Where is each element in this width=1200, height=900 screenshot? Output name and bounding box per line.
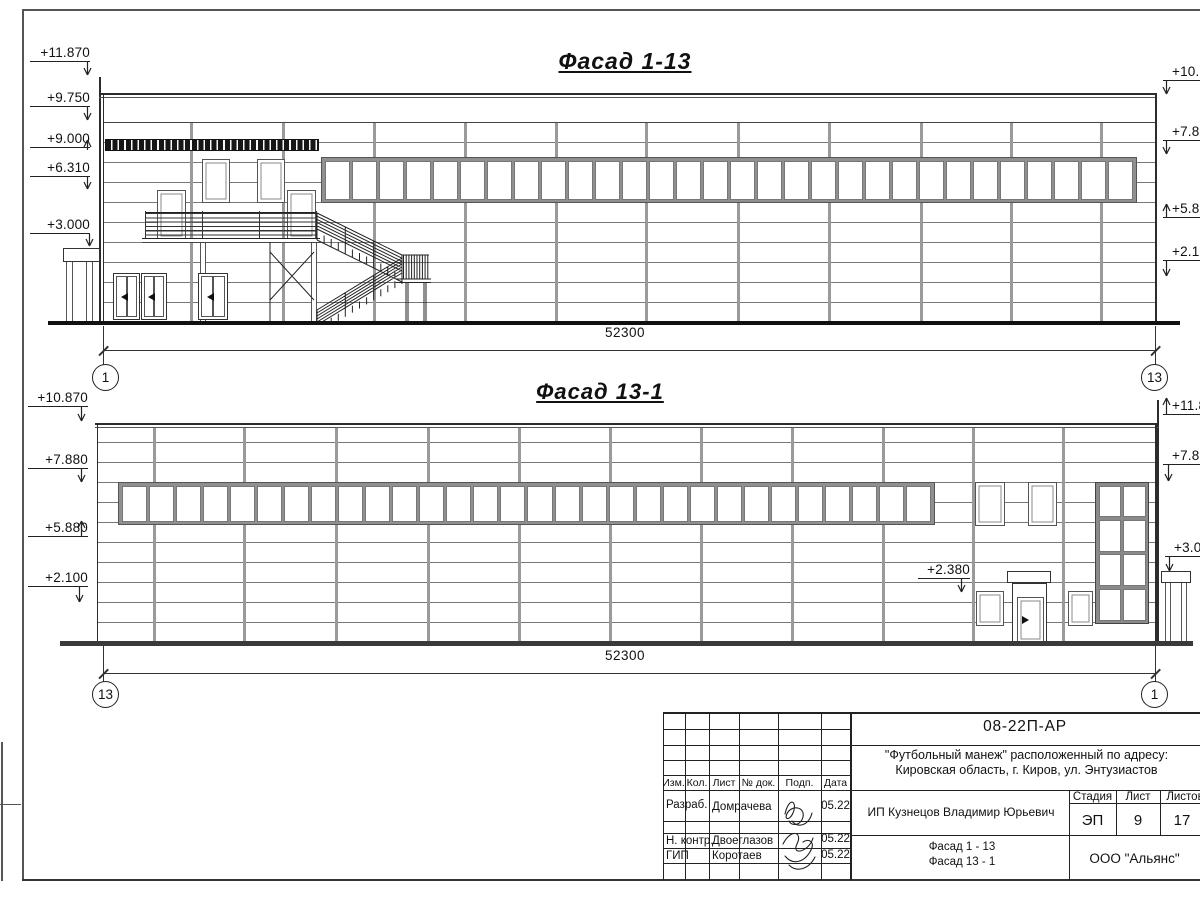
titleblock-line bbox=[663, 821, 850, 822]
level-arrow-down-icon bbox=[1163, 465, 1174, 482]
elevation-mark: +9.000 bbox=[30, 132, 90, 148]
window-pane bbox=[176, 486, 201, 522]
door-swing-arrow-icon bbox=[148, 293, 155, 301]
col-header-kol: Кол. bbox=[685, 776, 709, 789]
window-pane bbox=[1123, 520, 1145, 552]
dimension-line bbox=[103, 350, 1155, 351]
level-arrow-down-icon bbox=[76, 469, 87, 483]
facade2-ground-line bbox=[60, 641, 1193, 646]
facade2-window bbox=[1028, 482, 1057, 526]
window-pane bbox=[730, 161, 755, 200]
window-pane bbox=[771, 486, 796, 522]
window-pane bbox=[609, 486, 634, 522]
window-pane bbox=[595, 161, 620, 200]
column-line bbox=[1062, 427, 1065, 641]
elevation-mark: +7.880 bbox=[1163, 125, 1200, 141]
column-line bbox=[645, 122, 648, 321]
level-arrow-down-icon bbox=[82, 177, 93, 190]
window-pane bbox=[703, 161, 728, 200]
window-pane bbox=[419, 486, 444, 522]
facade1-porch-column bbox=[66, 262, 73, 321]
window-pane bbox=[838, 161, 863, 200]
window-pane bbox=[825, 486, 850, 522]
sheet-number: 9 bbox=[1116, 808, 1160, 832]
titleblock-line bbox=[663, 745, 1200, 746]
window-pane bbox=[973, 161, 998, 200]
col-header-podp: Подп. bbox=[778, 776, 821, 789]
facade2-window bbox=[975, 482, 1005, 526]
elevation-mark: +6.310 bbox=[30, 161, 90, 177]
door-leaf bbox=[213, 276, 225, 317]
stage-label: Стадия bbox=[1069, 791, 1116, 803]
column-line bbox=[335, 427, 338, 641]
column-line bbox=[828, 122, 831, 321]
doc-number: 08-22П-АР bbox=[850, 715, 1200, 739]
window-pane bbox=[1123, 486, 1145, 518]
facade2-window-band bbox=[118, 482, 935, 525]
facade1-window bbox=[257, 159, 285, 203]
window-pane bbox=[284, 486, 309, 522]
window-pane bbox=[203, 486, 228, 522]
col-header-izm: Изм. bbox=[662, 776, 685, 789]
window-pane bbox=[311, 486, 336, 522]
window-pane bbox=[1081, 161, 1106, 200]
titleblock-line bbox=[1069, 803, 1200, 804]
column-line bbox=[153, 427, 156, 641]
siding-line bbox=[97, 462, 1155, 463]
window-pane bbox=[257, 486, 282, 522]
door-leaf bbox=[127, 276, 138, 317]
sheet-content-line2: Фасад 13 - 1 bbox=[855, 855, 1069, 868]
window-pane bbox=[392, 486, 417, 522]
facade1-roofline bbox=[103, 122, 1155, 123]
facade2-left-edge bbox=[97, 423, 98, 641]
row-name: Двоеглазов bbox=[712, 834, 778, 847]
titleblock-border bbox=[663, 712, 1200, 714]
facade1-porch-column bbox=[86, 262, 93, 321]
level-arrow-down-icon bbox=[1161, 141, 1172, 155]
titleblock-line bbox=[663, 760, 850, 761]
level-arrow-down-icon bbox=[74, 587, 85, 603]
level-arrow-down-icon bbox=[956, 579, 967, 593]
titleblock-border bbox=[663, 712, 665, 880]
level-arrow-down-icon bbox=[1161, 261, 1172, 277]
column-line bbox=[1010, 122, 1013, 321]
elevation-mark: +7.880 bbox=[28, 453, 88, 469]
window-pane bbox=[1099, 554, 1121, 586]
stage-value: ЭП bbox=[1069, 808, 1116, 832]
level-arrow-down-icon bbox=[84, 234, 95, 247]
extension-line bbox=[103, 646, 104, 682]
row-date: 05.22 bbox=[821, 799, 850, 812]
facade2-porch-roof bbox=[1161, 571, 1191, 583]
window-pane bbox=[406, 161, 431, 200]
window-pane bbox=[352, 161, 377, 200]
row-date: 05.22 bbox=[821, 848, 850, 861]
window-pane bbox=[1108, 161, 1133, 200]
level-arrow-down-icon bbox=[1161, 81, 1172, 95]
window-pane bbox=[879, 486, 904, 522]
sheet-label: Лист bbox=[1116, 791, 1160, 803]
window-pane bbox=[433, 161, 458, 200]
window-pane bbox=[527, 486, 552, 522]
elevation-mark: +2.100 bbox=[28, 571, 88, 587]
facade1-window-band bbox=[321, 157, 1137, 203]
window-pane bbox=[460, 161, 485, 200]
window-pane bbox=[663, 486, 688, 522]
level-arrow-down-icon bbox=[82, 107, 93, 121]
level-arrow-down-icon bbox=[1164, 557, 1175, 572]
project-address-line2: Кировская область, г. Киров, ул. Энтузиа… bbox=[853, 763, 1200, 777]
level-arrow-down-icon bbox=[76, 407, 87, 422]
window-pane bbox=[622, 161, 647, 200]
facade1-axis-left: 1 bbox=[92, 364, 119, 391]
client-name: ИП Кузнецов Владимир Юрьевич bbox=[853, 804, 1069, 820]
row-date: 05.22 bbox=[821, 832, 850, 845]
window-pane bbox=[1099, 486, 1121, 518]
window-pane bbox=[473, 486, 498, 522]
window-pane bbox=[757, 161, 782, 200]
titleblock-line bbox=[663, 863, 850, 864]
sheet-frame-left bbox=[22, 9, 24, 881]
window-pane bbox=[446, 486, 471, 522]
window-pane bbox=[122, 486, 147, 522]
window-pane bbox=[649, 161, 674, 200]
elevation-mark: +11.870 bbox=[1163, 399, 1200, 415]
facade2-right-edge bbox=[1155, 423, 1157, 641]
column-line bbox=[518, 427, 521, 641]
facade1-porch-roof bbox=[63, 248, 100, 262]
window-pane bbox=[946, 161, 971, 200]
facade2-right-post bbox=[1157, 400, 1159, 641]
window-pane bbox=[379, 161, 404, 200]
window-pane bbox=[676, 161, 701, 200]
window-pane bbox=[906, 486, 931, 522]
window-pane bbox=[1123, 554, 1145, 586]
level-arrow-up-icon bbox=[76, 520, 87, 537]
window-pane bbox=[892, 161, 917, 200]
col-header-list: Лист bbox=[709, 776, 739, 789]
window-pane bbox=[1054, 161, 1079, 200]
window-pane bbox=[325, 161, 350, 200]
project-address-line1: "Футбольный манеж" расположенный по адре… bbox=[853, 748, 1200, 762]
facade1-entrance-door bbox=[198, 273, 228, 320]
company-name: ООО "Альянс" bbox=[1069, 848, 1200, 868]
facade1-canopy bbox=[105, 139, 319, 151]
column-line bbox=[427, 427, 430, 641]
elevation-mark: +10.870 bbox=[28, 391, 88, 407]
window-pane bbox=[230, 486, 255, 522]
elevation-mark: +2.100 bbox=[1163, 245, 1200, 261]
elevation-mark: +3.000 bbox=[1165, 541, 1200, 557]
facade1-left-edge bbox=[103, 93, 104, 322]
facade1-entrance-door bbox=[141, 273, 167, 320]
titleblock-line bbox=[709, 712, 710, 880]
siding-line bbox=[97, 442, 1155, 443]
window-pane bbox=[690, 486, 715, 522]
window-pane bbox=[1099, 520, 1121, 552]
extension-line bbox=[1155, 646, 1156, 682]
window-pane bbox=[500, 486, 525, 522]
filing-margin-tick bbox=[0, 804, 21, 805]
window-pane bbox=[865, 161, 890, 200]
door-leaf bbox=[154, 276, 164, 317]
level-arrow-down-icon bbox=[82, 62, 93, 76]
facade2-small-window bbox=[1068, 591, 1093, 626]
facade2-small-window bbox=[976, 591, 1004, 626]
column-line bbox=[1100, 122, 1103, 321]
window-pane bbox=[338, 486, 363, 522]
facade1-parapet-top bbox=[99, 93, 1157, 95]
column-line bbox=[464, 122, 467, 321]
window-pane bbox=[582, 486, 607, 522]
facade2-glazed-wall bbox=[1095, 482, 1149, 624]
sheet-frame-bottom bbox=[22, 879, 1200, 881]
drawing-sheet: { "colors": { "ink": "#111111", "line_gr… bbox=[0, 0, 1200, 900]
col-header-data: Дата bbox=[821, 776, 850, 789]
elevation-mark: +3.000 bbox=[30, 218, 90, 234]
window-pane bbox=[1099, 589, 1121, 621]
column-line bbox=[791, 427, 794, 641]
row-name: Коротаев bbox=[712, 849, 774, 862]
siding-line bbox=[97, 562, 1155, 563]
window-pane bbox=[1123, 589, 1145, 621]
column-line bbox=[882, 427, 885, 641]
door-swing-arrow-icon bbox=[207, 293, 214, 301]
row-name: Домрачева bbox=[712, 800, 778, 813]
facade2-parapet-top bbox=[95, 423, 1159, 425]
facade1-axis-right: 13 bbox=[1141, 364, 1168, 391]
facade1-parapet-line2 bbox=[99, 97, 1157, 98]
sheet-frame-top bbox=[22, 9, 1200, 11]
elevation-mark: +10.870 bbox=[1163, 65, 1200, 81]
facade2-dimension: 52300 bbox=[560, 648, 690, 663]
window-pane bbox=[919, 161, 944, 200]
sheets-total: 17 bbox=[1160, 808, 1200, 832]
window-pane bbox=[852, 486, 877, 522]
facade2-porch-column bbox=[1181, 583, 1187, 641]
window-pane bbox=[514, 161, 539, 200]
row-role: Разраб. bbox=[666, 798, 708, 811]
extension-line bbox=[103, 326, 104, 365]
facade2-axis-left: 13 bbox=[92, 681, 119, 708]
facade2-title: Фасад 13-1 bbox=[440, 379, 760, 405]
window-pane bbox=[744, 486, 769, 522]
door-swing-arrow-icon bbox=[121, 293, 128, 301]
window-pane bbox=[568, 161, 593, 200]
column-line bbox=[972, 427, 975, 641]
signature bbox=[779, 792, 821, 880]
window-pane bbox=[811, 161, 836, 200]
siding-line bbox=[97, 542, 1155, 543]
door-swing-arrow-icon bbox=[1022, 616, 1029, 624]
column-line bbox=[609, 427, 612, 641]
facade1-entrance-door bbox=[113, 273, 140, 320]
facade1-window bbox=[202, 159, 230, 203]
window-pane bbox=[365, 486, 390, 522]
facade1-dimension: 52300 bbox=[560, 325, 690, 340]
facade1-left-post bbox=[99, 77, 101, 322]
facade1-right-edge bbox=[1155, 93, 1157, 322]
titleblock-line bbox=[663, 729, 850, 730]
facade2-parapet-line2 bbox=[95, 427, 1159, 428]
level-arrow-up-icon bbox=[82, 137, 93, 148]
column-line bbox=[920, 122, 923, 321]
facade2-door-canopy bbox=[1007, 571, 1051, 583]
column-line bbox=[555, 122, 558, 321]
window-pane bbox=[149, 486, 174, 522]
window-pane bbox=[636, 486, 661, 522]
col-header-ndok: № док. bbox=[739, 776, 778, 789]
window-pane bbox=[717, 486, 742, 522]
window-pane bbox=[1000, 161, 1025, 200]
level-arrow-up-icon bbox=[1161, 203, 1172, 218]
facade2-axis-right: 1 bbox=[1141, 681, 1168, 708]
window-pane bbox=[784, 161, 809, 200]
facade1-title: Фасад 1-13 bbox=[460, 48, 790, 75]
elevation-mark: +9.750 bbox=[30, 91, 90, 107]
column-line bbox=[737, 122, 740, 321]
elevation-mark: +2.380 bbox=[918, 563, 970, 579]
facade2-entrance-door bbox=[1017, 597, 1044, 643]
window-pane bbox=[541, 161, 566, 200]
titleblock-line bbox=[850, 835, 1200, 836]
column-line bbox=[700, 427, 703, 641]
row-role: ГИП bbox=[666, 849, 706, 862]
facade1-stairs bbox=[140, 205, 440, 325]
filing-margin-line bbox=[1, 742, 3, 881]
window-pane bbox=[798, 486, 823, 522]
column-line bbox=[243, 427, 246, 641]
window-pane bbox=[1027, 161, 1052, 200]
sheets-label: Листов bbox=[1160, 791, 1200, 803]
window-pane bbox=[555, 486, 580, 522]
elevation-mark: +7.880 bbox=[1163, 449, 1200, 465]
siding-line bbox=[97, 582, 1155, 583]
facade2-porch-column bbox=[1165, 583, 1171, 641]
row-role: Н. контр. bbox=[666, 834, 712, 847]
sheet-content-line1: Фасад 1 - 13 bbox=[855, 840, 1069, 853]
elevation-mark: +11.870 bbox=[30, 46, 90, 62]
dimension-line bbox=[103, 673, 1155, 674]
window-pane bbox=[487, 161, 512, 200]
extension-line bbox=[1155, 326, 1156, 365]
